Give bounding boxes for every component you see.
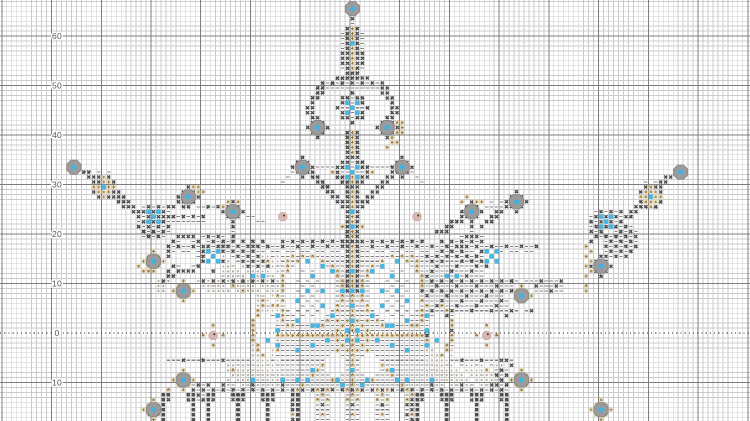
svg-text:30: 30 (52, 180, 62, 190)
svg-text:60: 60 (52, 31, 62, 41)
svg-text:0: 0 (55, 328, 60, 338)
svg-text:10: 10 (52, 378, 62, 388)
svg-text:10: 10 (52, 279, 62, 289)
svg-text:20: 20 (52, 229, 62, 239)
svg-text:40: 40 (52, 130, 62, 140)
svg-text:50: 50 (52, 81, 62, 91)
